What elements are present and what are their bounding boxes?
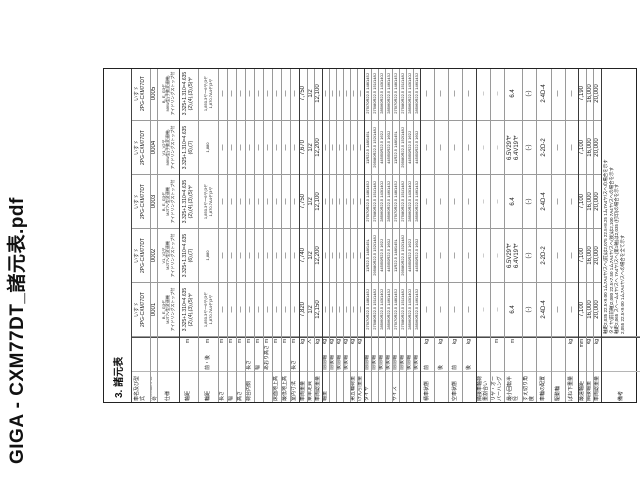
spec-cell: 285/60R22.5 143/140J xyxy=(379,283,385,337)
spec-cell: — xyxy=(282,69,290,121)
spec-cell: — xyxy=(255,175,263,229)
spec-cell: — xyxy=(323,229,329,283)
row-label-main: 輪距 xyxy=(199,372,218,402)
row-label: 後後軸 xyxy=(386,337,392,402)
table-row: 最低地上高m————— xyxy=(281,69,290,402)
spec-cell: — xyxy=(330,229,336,283)
spec-cell: 295/80R22.5 152/148J xyxy=(400,121,406,175)
spec-cell: 6.4 xyxy=(505,175,522,229)
spec-cell: — xyxy=(477,229,490,283)
spec-cell: 275/80R22.5 151/148J xyxy=(400,283,406,337)
spec-cell: 275/70R22.5 148/145J xyxy=(365,175,371,229)
spec-cell: 445/50R22.5 162J xyxy=(379,121,385,175)
spec-cell: — xyxy=(351,69,357,121)
row-label: 備考 xyxy=(602,337,640,402)
spec-cell: — xyxy=(282,175,290,229)
row-label-sub: 後前軸kg xyxy=(337,338,343,372)
table-row: 輪距前・後m1,850.3ヤ〜6ヤ(3ヤ1,870.7A4ヤ(3ヤ1,8801,… xyxy=(198,69,218,402)
spec-cell: 1,880 xyxy=(199,229,218,283)
spec-cell: 1/2 xyxy=(308,175,314,229)
spec-cell: — xyxy=(228,283,236,337)
spec-cell: — xyxy=(282,283,290,337)
spec-cell: — xyxy=(552,283,565,337)
row-label: 前後軸 xyxy=(372,337,378,402)
row-label-main xyxy=(264,372,272,402)
row-label-sub: 前前軸 xyxy=(365,338,371,372)
spec-cell: — xyxy=(291,283,299,337)
row-label-main: 積車状態 xyxy=(421,372,434,402)
spec-cell: 275/70R22.5 148/145J xyxy=(393,175,399,229)
spec-cell: — xyxy=(282,229,290,283)
spec-cell: — xyxy=(237,229,245,283)
spec-cell: — xyxy=(219,69,227,121)
spec-cell: 0005 xyxy=(151,69,157,121)
spec-cell: 6.4 xyxy=(505,283,522,337)
table-caption-band: 3. 諸元表 xyxy=(104,69,132,402)
table-row: 仕様B, E, G3ヤMJT7V型変速機アイドリングストップ付V1, V2ヤMJ… xyxy=(157,69,179,402)
spec-cell: (-) xyxy=(523,229,536,283)
spec-cell: 445/50R22.5 162J xyxy=(407,229,413,283)
spec-cell: 7,750 xyxy=(300,175,307,229)
row-label-main: けん引重量 xyxy=(358,372,364,402)
spec-cell: 20,000 xyxy=(594,283,601,337)
table-row: 積車状態前kg————— xyxy=(420,69,434,402)
spec-cell: 1,880 xyxy=(199,121,218,175)
spec-cell: — xyxy=(449,69,462,121)
row-label: 隣接軸重kg xyxy=(587,337,593,402)
spec-cell: 11R22.5 148/145L xyxy=(393,229,399,283)
row-label-sub: 前後軸 xyxy=(400,338,406,372)
table-row: 乗車定員人1/21/21/21/21/2 xyxy=(307,69,314,402)
row-label: 仕様 xyxy=(158,337,179,402)
spec-cell: — xyxy=(351,229,357,283)
spec-cell: — xyxy=(491,229,504,283)
spec-cell: 445/50R22.5 160J xyxy=(386,121,392,175)
row-label-sub xyxy=(151,338,157,372)
row-label-main: 幅 xyxy=(228,372,236,402)
row-label: 荷台内側長さm xyxy=(246,337,254,402)
remarks-cell: 軸距2,035 22.5×9.00 1ム7A4ヤ/スヘ(前)は2,075 22.… xyxy=(602,69,640,337)
row-label: 後前軸kg xyxy=(337,337,343,402)
row-label-sub: m xyxy=(273,338,281,372)
row-label: 後後軸kg xyxy=(344,337,350,402)
spec-cell: 295/80R22.5 152/148J xyxy=(372,229,378,283)
table-row: 備考軸距2,035 22.5×9.00 1ム7A4ヤ/スヘ(前)は2,075 2… xyxy=(601,69,640,402)
spec-cell: — xyxy=(491,121,504,175)
pdf-file-title: GIGA - CXM77DT_諸元表.pdf xyxy=(2,197,29,464)
row-label-sub: 後kg xyxy=(463,338,476,372)
spec-cell: — xyxy=(246,229,254,283)
row-label: ばね下重量kg xyxy=(566,337,578,402)
spec-cell: B, E, G3ヤMJT7V型変速機アイドリングストップ付 xyxy=(158,283,179,337)
row-label-sub: 前後軸 xyxy=(372,338,378,372)
row-label-sub: m xyxy=(491,338,504,372)
spec-cell: — xyxy=(421,283,434,337)
table-row: 駆動輪————— xyxy=(551,69,565,402)
spec-cell: — xyxy=(255,283,263,337)
spec-cell: — xyxy=(291,229,299,283)
spec-cell: 12,100 xyxy=(315,175,322,229)
row-label: 空車状態前kg xyxy=(449,337,462,402)
row-label-main: 車両総重量 xyxy=(594,372,601,402)
spec-cell: — xyxy=(246,69,254,121)
row-label: 後kg xyxy=(435,337,448,402)
row-label-sub: kg xyxy=(594,338,601,372)
spec-cell: 285/60R22.5 146/143J xyxy=(386,283,392,337)
spec-cell: 7,750 xyxy=(300,69,307,121)
spec-cell: いすゞ2PG-CXM77DT xyxy=(132,229,150,283)
table-row: 後前軸285/60R22.5 143/140J445/50R22.5 162J2… xyxy=(406,69,413,402)
row-label: 前後軸kg xyxy=(330,337,336,402)
row-label-sub: kg xyxy=(351,338,357,372)
row-label-main xyxy=(337,372,343,402)
spec-cell: — xyxy=(449,175,462,229)
row-label-sub: 前前軸kg xyxy=(323,338,329,372)
spec-cell: 285/60R22.5 143/140J xyxy=(407,283,413,337)
table-row: 第五輪荷重kg————— xyxy=(350,69,357,402)
row-label: 類別区分番号 xyxy=(151,337,157,402)
table-row: 車輪の配置2-4D-42-2D-22-4D-42-2D-22-4D-4 xyxy=(536,69,551,402)
spec-cell: — xyxy=(351,283,357,337)
spec-cell: — xyxy=(237,283,245,337)
spec-cell: — xyxy=(330,69,336,121)
row-label-sub xyxy=(158,338,179,372)
spec-cell: 16,000 xyxy=(587,121,593,175)
row-label: 最小回転半径m xyxy=(505,337,522,402)
table-row: すえ切り角度(-)(-)(-)(-)(-) xyxy=(522,69,536,402)
spec-cell: 445/50R22.5 162J xyxy=(407,121,413,175)
spec-cell: 20,000 xyxy=(594,121,601,175)
table-rows: 車名及び型式いすゞ2PG-CXM77DTいすゞ2PG-CXM77DTいすゞ2PG… xyxy=(132,69,640,402)
spec-cell: — xyxy=(491,175,504,229)
spec-cell: V1, V2ヤMJT7V型変速機アイドリングストップ付 xyxy=(158,229,179,283)
row-label: 車両総重量kg xyxy=(315,337,322,402)
spec-cell: — xyxy=(449,283,462,337)
spec-cell: 275/80R22.5 151/148J xyxy=(400,175,406,229)
spec-cell: — xyxy=(463,283,476,337)
table-row: あおり高さm————— xyxy=(263,69,272,402)
spec-cell: 20,000 xyxy=(594,229,601,283)
row-label-main xyxy=(407,372,413,402)
table-row: ばね下重量kg————— xyxy=(565,69,578,402)
spec-cell: 275/80R22.5 151/148J xyxy=(372,175,378,229)
row-label-sub: 後前軸 xyxy=(379,338,385,372)
row-label-sub xyxy=(602,338,640,372)
table-row: タイヤ前前軸275/70R22.5 148/145J11R22.5 148/14… xyxy=(364,69,371,402)
spec-cell: — xyxy=(344,175,350,229)
spec-cell: — xyxy=(566,283,578,337)
spec-cell: 445/50R22.5 160J xyxy=(414,121,420,175)
row-label: 前後軸 xyxy=(400,337,406,402)
spec-cell: 6.5V29ヤ6.4V19ヤ xyxy=(505,121,522,175)
row-label: 隣接車軸荷重割合い xyxy=(477,337,490,402)
spec-cell: いすゞ2PG-CXM77DT xyxy=(132,121,150,175)
row-label-main xyxy=(386,372,392,402)
row-label-sub: m xyxy=(282,338,290,372)
row-label-sub: 前kg xyxy=(421,338,434,372)
row-label: 後前軸 xyxy=(379,337,385,402)
spec-cell: 6.4 xyxy=(505,69,522,121)
table-row: 室内寸法長さm————— xyxy=(290,69,299,402)
spec-cell: — xyxy=(463,175,476,229)
spec-cell: — xyxy=(228,175,236,229)
row-label-main xyxy=(379,372,385,402)
spec-cell: — xyxy=(219,283,227,337)
spec-cell: 0004 xyxy=(151,121,157,175)
spec-cell: — xyxy=(421,175,434,229)
row-label: 車両重量kg xyxy=(300,337,307,402)
row-label-main: 最小回転半径 xyxy=(505,372,522,402)
spec-cell: 445/50R22.5 160J xyxy=(386,229,392,283)
row-label-main xyxy=(414,372,420,402)
table-row: 荷台内側長さm————— xyxy=(245,69,254,402)
row-label-sub: 前後軸kg xyxy=(330,338,336,372)
spec-cell: V1, V2ヤM6W型(手動変速機)アイドリングストップ付 xyxy=(158,121,179,175)
spec-cell: — xyxy=(228,69,236,121)
spec-cell: (-) xyxy=(523,175,536,229)
table-row: 軸重前前軸kg————— xyxy=(322,69,329,402)
row-label-sub: m xyxy=(219,338,227,372)
table-row: 幅m————— xyxy=(227,69,236,402)
spec-cell: — xyxy=(255,69,263,121)
row-label: あおり高さm xyxy=(264,337,272,402)
spec-cell: — xyxy=(351,175,357,229)
spec-cell: — xyxy=(552,121,565,175)
spec-cell: — xyxy=(291,121,299,175)
spec-cell: — xyxy=(273,283,281,337)
spec-cell: 285/60R22.5 143/140J xyxy=(379,175,385,229)
row-label-sub: kg xyxy=(315,338,322,372)
row-label-main: 仕様 xyxy=(158,372,179,402)
spec-cell: — xyxy=(566,69,578,121)
spec-cell: — xyxy=(337,69,343,121)
row-label-sub: 前・後m xyxy=(199,338,218,372)
spec-cell: — xyxy=(477,175,490,229)
spec-cell: — xyxy=(566,175,578,229)
spec-cell: 3.325+1.310=4.635(6),(7) xyxy=(180,121,198,175)
table-row: けん引重量kg————— xyxy=(357,69,364,402)
row-label-sub: kg xyxy=(566,338,578,372)
row-label: 第五輪荷重kg xyxy=(351,337,357,402)
row-label-sub: 長さm xyxy=(246,338,254,372)
row-label: 幅m xyxy=(228,337,236,402)
row-label-sub: 長さm xyxy=(291,338,299,372)
row-label: 後後軸 xyxy=(414,337,420,402)
spec-cell: — xyxy=(337,283,343,337)
spec-cell: 16,000 xyxy=(587,283,593,337)
spec-cell: — xyxy=(477,283,490,337)
spec-cell: 1,850.3ヤ〜6ヤ(3ヤ1,870.7A4ヤ(3ヤ xyxy=(199,175,218,229)
spec-cell: いすゞ2PG-CXM77DT xyxy=(132,175,150,229)
spec-cell: — xyxy=(246,283,254,337)
spec-cell: — xyxy=(344,121,350,175)
row-label-main: 車輪の配置 xyxy=(537,372,551,402)
spec-cell: 275/70R22.5 148/145J xyxy=(365,69,371,121)
spec-cell: — xyxy=(291,69,299,121)
spec-cell: — xyxy=(273,121,281,175)
spec-cell: — xyxy=(264,121,272,175)
spec-cell: — xyxy=(273,69,281,121)
spec-cell: — xyxy=(421,69,434,121)
pdf-viewer-screen: GIGA - CXM77DT_諸元表.pdf 3. 諸元表 車名及び型式いすゞ2… xyxy=(0,0,640,480)
row-label: 車両総重量kg xyxy=(594,337,601,402)
spec-cell: 295/80R22.5 152/148J xyxy=(372,121,378,175)
spec-cell: 6.5V29ヤ6.4V19ヤ xyxy=(505,229,522,283)
table-row: 高さm————— xyxy=(236,69,245,402)
spec-cell: 1,850.3ヤ〜6ヤ(3ヤ1,870.7A4ヤ(3ヤ xyxy=(199,283,218,337)
spec-cell: — xyxy=(344,283,350,337)
spec-cell: — xyxy=(477,69,490,121)
spec-cell: — xyxy=(219,175,227,229)
table-row: 軸距m3.325+1.310=4.635(2),(4),(3),(5)ヤ3.32… xyxy=(179,69,198,402)
row-label-main xyxy=(344,372,350,402)
row-label-sub: あおり高さm xyxy=(264,338,272,372)
row-label-main: 車両重量 xyxy=(300,372,307,402)
spec-cell: — xyxy=(219,229,227,283)
row-label-main: 隣接車軸荷重割合い xyxy=(477,372,490,402)
table-row: 後前軸kg————— xyxy=(336,69,343,402)
spec-cell: — xyxy=(264,229,272,283)
spec-cell: — xyxy=(282,121,290,175)
spec-cell: 11R22.5 148/145L xyxy=(365,121,371,175)
spec-cell: 2-4D-4 xyxy=(537,69,551,121)
spec-cell: — xyxy=(449,229,462,283)
spec-cell: 275/80R22.5 151/148J xyxy=(372,283,378,337)
spec-cell: — xyxy=(463,69,476,121)
spec-cell: 285/60R22.5 146/143J xyxy=(386,175,392,229)
spec-cell: 1/2 xyxy=(308,283,314,337)
table-row: 前後軸275/80R22.5 151/148J295/80R22.5 152/1… xyxy=(399,69,406,402)
spec-cell: — xyxy=(358,283,364,337)
row-label-main: リヤ・オーバーハング xyxy=(491,372,504,402)
table-row: リヤ・オーバーハングm————— xyxy=(490,69,504,402)
row-label: サイズ前前軸 xyxy=(393,337,399,402)
row-label-main: 乗車定員 xyxy=(308,372,314,402)
table-row: 前後軸275/80R22.5 151/148J295/80R22.5 152/1… xyxy=(371,69,378,402)
spec-cell: 12,200 xyxy=(315,121,322,175)
row-label: 積車状態前kg xyxy=(421,337,434,402)
spec-cell: — xyxy=(237,121,245,175)
table-row: 長さm————— xyxy=(218,69,227,402)
row-label-sub xyxy=(477,338,490,372)
spec-cell: 20,000 xyxy=(594,175,601,229)
row-label: 長さm xyxy=(219,337,227,402)
spec-cell: — xyxy=(435,121,448,175)
row-label: 高さm xyxy=(237,337,245,402)
row-label-sub: 前前軸 xyxy=(393,338,399,372)
spec-cell: 2-2D-2 xyxy=(537,229,551,283)
table-row: 車両重量kg7,8207,7407,7507,6707,750 xyxy=(299,69,307,402)
row-label-main: 車両総重量 xyxy=(315,372,322,402)
row-label-main: 高さ xyxy=(237,372,245,402)
spec-cell: — xyxy=(337,175,343,229)
spec-cell: 7,190 xyxy=(579,69,586,121)
row-label-main: すえ切り角度 xyxy=(523,372,536,402)
spec-cell: — xyxy=(358,229,364,283)
row-label-main: 床面地上高 xyxy=(273,372,281,402)
row-label-main xyxy=(330,372,336,402)
row-label: けん引重量kg xyxy=(358,337,364,402)
row-label-main: 軸距 xyxy=(180,372,198,402)
row-label-sub: 人 xyxy=(308,338,314,372)
row-label-sub: m xyxy=(228,338,236,372)
row-label-main xyxy=(255,372,263,402)
table-row: 隣接車軸荷重割合い————— xyxy=(476,69,490,402)
row-label-sub: 後後軸 xyxy=(386,338,392,372)
row-label: すえ切り角度 xyxy=(523,337,536,402)
spec-cell: — xyxy=(228,121,236,175)
spec-cell: — xyxy=(358,175,364,229)
row-label-main: 車名及び型式 xyxy=(132,372,150,402)
spec-cell: 3.325+1.310=4.635(2),(4),(3),(5)ヤ xyxy=(180,175,198,229)
table-row: 最遠軸距mm7,1007,1007,1007,1007,190 xyxy=(578,69,586,402)
row-label: 駆動輪 xyxy=(552,337,565,402)
spec-cell: — xyxy=(344,69,350,121)
table-row: 後後軸285/60R22.5 146/143J445/50R22.5 160J2… xyxy=(385,69,392,402)
spec-cell: 285/60R22.5 143/140J xyxy=(407,175,413,229)
spec-cell: 11R22.5 148/145L xyxy=(365,229,371,283)
row-label-sub: 幅m xyxy=(255,338,263,372)
row-label: 室内寸法長さm xyxy=(291,337,299,402)
spec-cell: — xyxy=(246,175,254,229)
spec-cell: 285/60R22.5 146/143J xyxy=(386,69,392,121)
row-label-sub: kg xyxy=(587,338,593,372)
row-label-sub: 前kg xyxy=(449,338,462,372)
row-label-sub xyxy=(537,338,551,372)
spec-cell: — xyxy=(255,229,263,283)
spec-cell: 275/70R22.5 148/145J xyxy=(393,283,399,337)
spec-cell: 7,670 xyxy=(300,121,307,175)
spec-cell: — xyxy=(344,229,350,283)
spec-cell: — xyxy=(552,229,565,283)
spec-cell: — xyxy=(435,69,448,121)
spec-cell: — xyxy=(264,69,272,121)
row-label: タイヤ前前軸 xyxy=(365,337,371,402)
spec-cell: — xyxy=(552,69,565,121)
row-label-sub xyxy=(523,338,536,372)
table-row: 後kg————— xyxy=(434,69,448,402)
spec-cell: — xyxy=(246,121,254,175)
table-row: 幅m————— xyxy=(254,69,263,402)
spec-cell: — xyxy=(463,229,476,283)
spec-cell: 275/80R22.5 151/148J xyxy=(400,69,406,121)
spec-cell: いすゞ2PG-CXM77DT xyxy=(132,69,150,121)
row-label-sub: mm xyxy=(579,338,586,372)
spec-cell: — xyxy=(273,229,281,283)
spec-cell: 16,000 xyxy=(587,175,593,229)
spec-cell: 3.325+1.310=4.635(6),(7) xyxy=(180,229,198,283)
row-label-main: 隣接軸重 xyxy=(587,372,593,402)
spec-cell: B, E, G3ヤM6W型(手動変速機)アイドリングストップ付 xyxy=(158,69,179,121)
row-label: 車名及び型式 xyxy=(132,337,150,402)
spec-cell: — xyxy=(435,229,448,283)
spec-cell: B, E, G3ヤMJT7V型変速機アイドリングストップ付 xyxy=(158,175,179,229)
spec-cell: 285/60R22.5 146/143J xyxy=(414,283,420,337)
spec-cell: 1,850.3ヤ〜6ヤ(3ヤ1,870.7A4ヤ(3ヤ xyxy=(199,69,218,121)
row-label-main xyxy=(463,372,476,402)
row-label-main: ばね下重量 xyxy=(566,372,578,402)
row-label-sub xyxy=(552,338,565,372)
row-label: 後前軸 xyxy=(407,337,413,402)
row-label-sub: 後kg xyxy=(435,338,448,372)
spec-cell: 0003 xyxy=(151,175,157,229)
row-label-sub: kg xyxy=(358,338,364,372)
spec-cell: — xyxy=(330,283,336,337)
spec-cell: — xyxy=(552,175,565,229)
spec-cell: — xyxy=(330,121,336,175)
spec-cell: — xyxy=(463,121,476,175)
row-label-main: 最低地上高 xyxy=(282,372,290,402)
